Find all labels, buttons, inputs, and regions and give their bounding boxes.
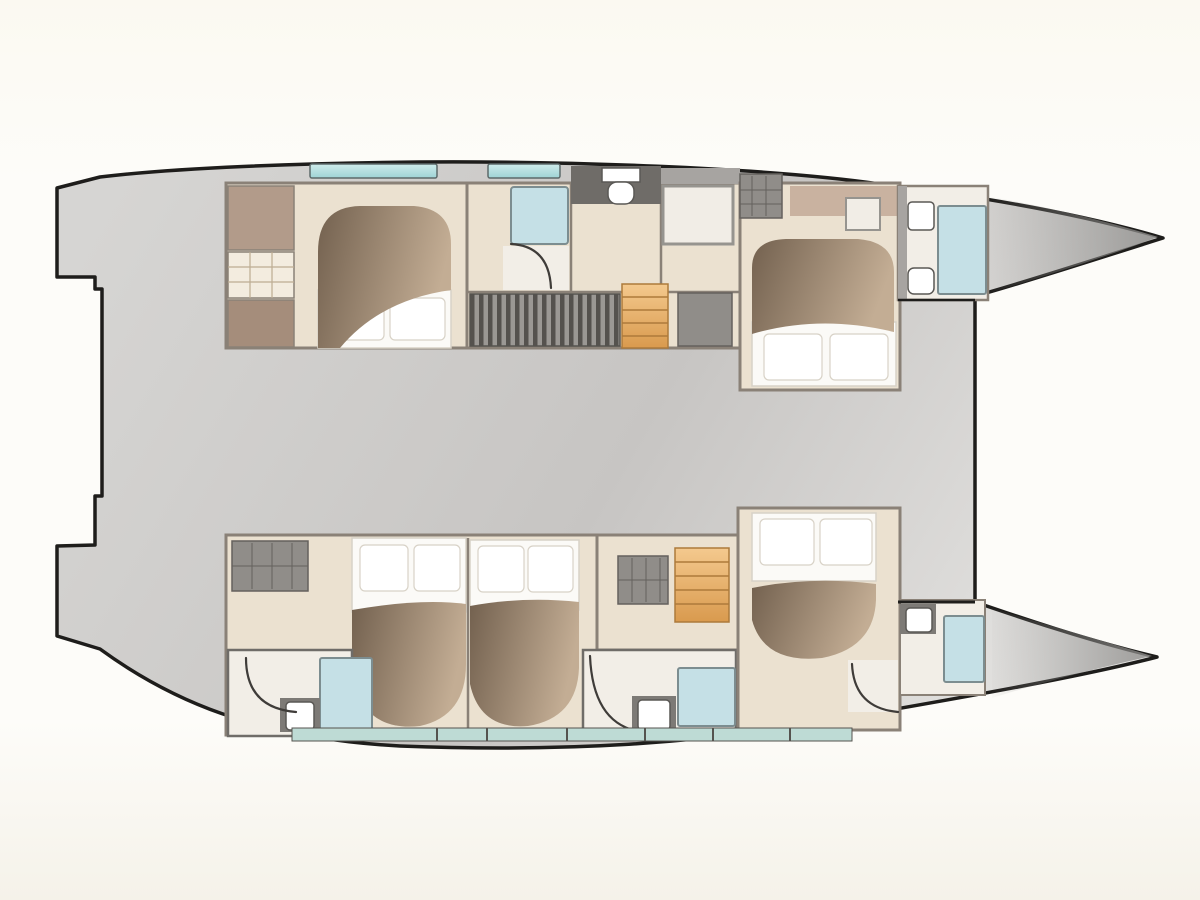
toilet [908,268,934,294]
hatch [663,186,733,244]
shower [320,658,372,732]
pillow [764,334,822,380]
pillow [820,519,872,565]
pillow [478,546,524,592]
toilet-tank [602,168,640,182]
window [846,198,880,230]
side-deck-band [661,168,740,184]
cabinet [678,293,732,346]
floor-plan-canvas [0,0,1200,900]
washbasin [908,202,934,230]
pillow [360,545,408,591]
pillow [414,545,460,591]
catamaran-floor-plan [0,0,1200,900]
hull-window [488,164,560,178]
shower [511,187,568,244]
stairs [622,284,668,348]
pillow [528,546,573,592]
forward-bed [752,513,876,659]
pillow [830,334,888,380]
vanity [228,252,294,298]
toilet [638,700,670,730]
shower [678,668,735,726]
toilet-bowl [608,182,634,204]
mid-bed [470,540,579,726]
hatch [740,174,782,218]
duvet [470,600,579,727]
pillow [760,519,814,565]
duvet [752,239,894,334]
cabinet [228,300,294,347]
window-band [292,728,852,741]
shower [938,206,986,294]
starboard-hull [226,508,985,741]
aft-double-bed [318,206,451,348]
stairs [675,548,729,622]
forward-double-bed [752,239,896,386]
hull-window [310,164,437,178]
settee [470,294,620,346]
toilet [906,608,932,632]
wardrobe [228,186,294,250]
shower [944,616,984,682]
toilet [286,702,314,730]
bathroom-wall [898,186,907,300]
